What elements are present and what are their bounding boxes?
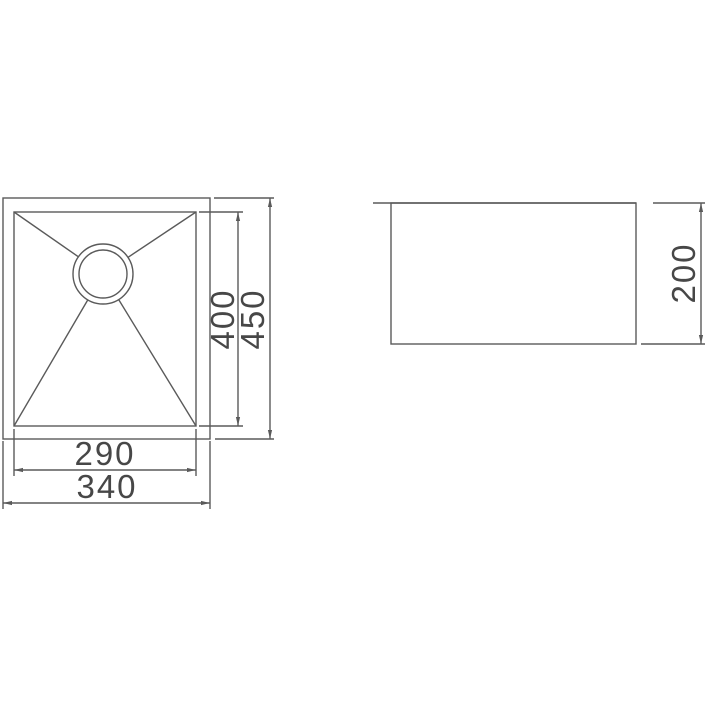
arrow-340-left [3,501,12,505]
fold-line-bottom-left [14,300,88,426]
arrow-200-bottom [699,335,703,344]
arrow-340-right [201,501,210,505]
arrow-290-right [187,468,196,472]
dim-label-inner-width: 290 [74,435,135,472]
fold-line-top-right [128,212,196,257]
dim-label-outer-width: 340 [76,468,137,505]
sink-drawing-svg: 290 340 400 450 200 [0,0,706,706]
drain-inner-circle [79,250,127,298]
arrow-400-top [236,212,240,221]
side-view [373,203,705,344]
arrow-450-bottom [268,430,272,439]
dim-label-depth: 200 [665,242,702,303]
drain-outer-circle [73,244,133,304]
arrow-290-left [14,468,23,472]
arrow-400-bottom [236,417,240,426]
technical-drawing: 290 340 400 450 200 [0,0,706,706]
side-view-bowl-rect [391,203,636,344]
arrow-450-top [268,198,272,207]
fold-line-top-left [14,212,78,257]
fold-line-bottom-right [119,300,196,426]
dim-label-outer-length: 450 [234,288,271,349]
arrow-200-top [699,203,703,212]
top-view-outer-rect [3,198,210,439]
top-view [3,198,274,509]
